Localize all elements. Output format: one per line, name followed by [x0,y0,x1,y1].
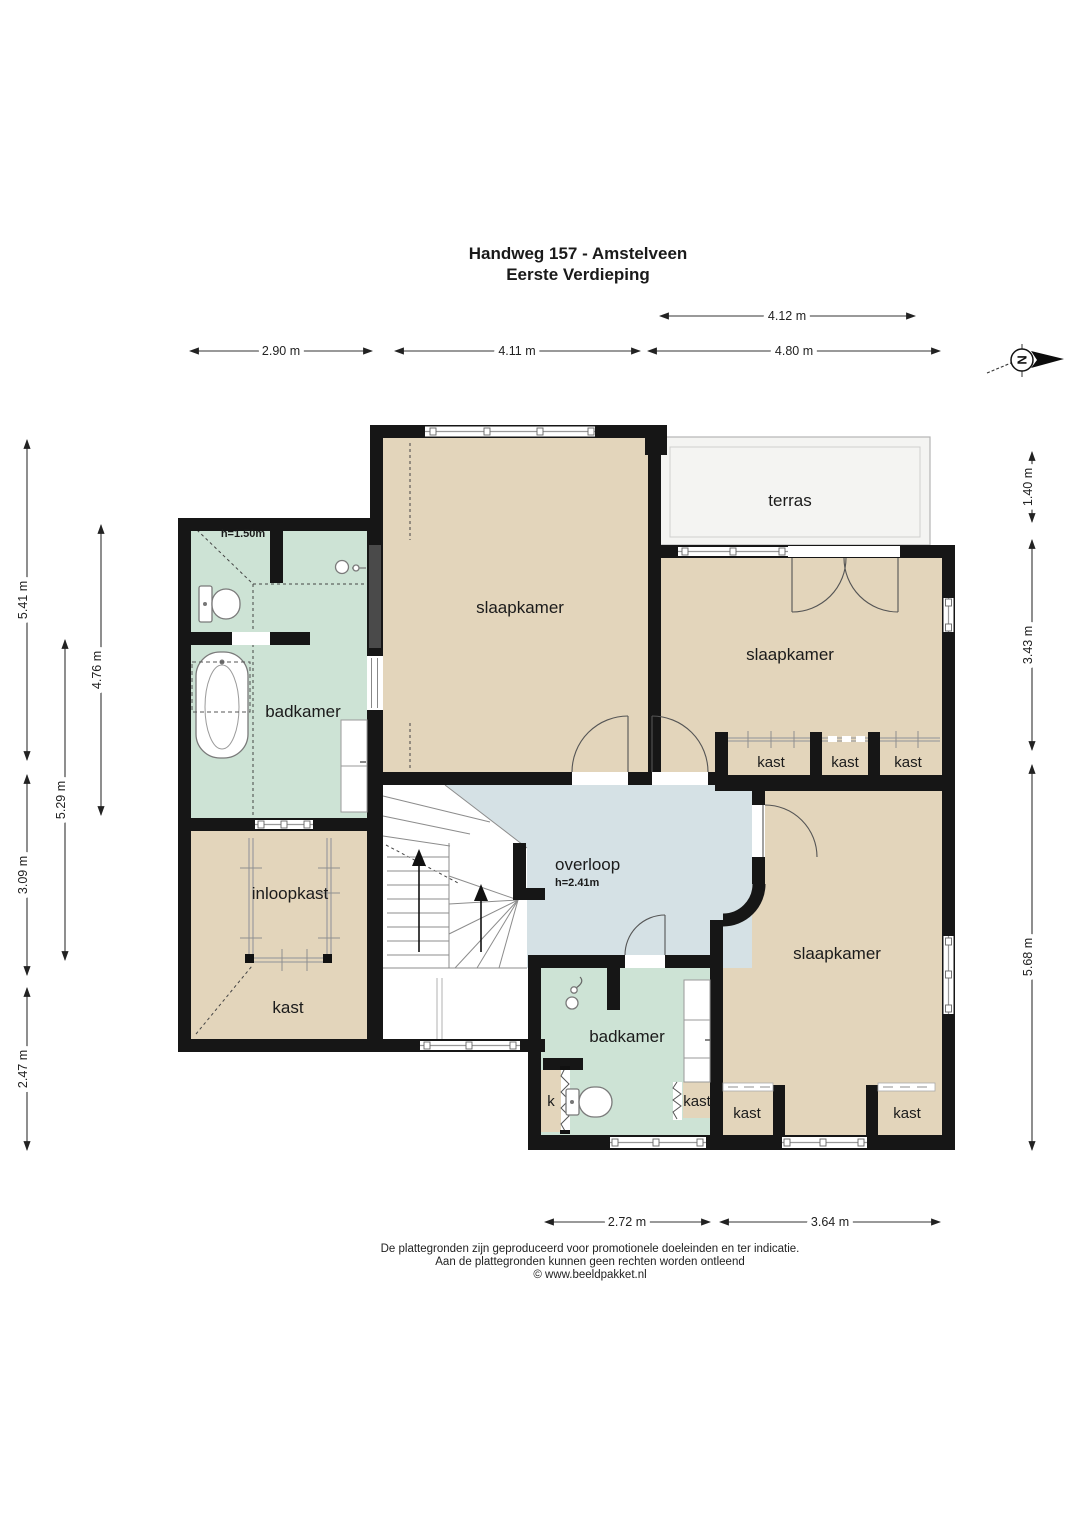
window-bedroom-right-east [944,598,954,632]
window-bathroom-bottom [610,1137,706,1148]
dim-right-top: 1.40 m [1021,468,1035,506]
dim-top-right: 4.80 m [775,344,813,358]
dim-top-left: 2.90 m [262,344,300,358]
toilet-bottom [566,1087,612,1117]
label-bathroom-top: badkamer [265,702,341,721]
door-toilet-niche-opening [232,632,270,645]
closet-bl-sliding [723,1083,773,1091]
dim-left-col2: 5.29 m [54,781,68,819]
toilet-top [199,586,240,622]
label-closet-small: kast [683,1093,711,1110]
label-bedroom-right: slaapkamer [746,645,834,664]
dim-top-terrace: 4.12 m [768,309,806,323]
door-bathroom-top-pocket [367,656,383,710]
label-bedroom-bottom: slaapkamer [793,944,881,963]
footer-line-3: © www.beeldpakket.nl [240,1269,940,1282]
compass-north-arrow [1031,351,1064,368]
bathtub [192,652,250,758]
wall-shaft-inset [369,545,381,648]
footer-disclaimer: De plattegronden zijn geproduceerd voor … [240,1243,940,1283]
compass: N [987,344,1064,377]
label-closet-row-3: kast [894,754,922,771]
label-landing-height: h=2.41m [555,877,600,889]
label-closet-row-1: kast [757,754,785,771]
window-terrace-wall [678,547,788,556]
cabinet-bathroom-bottom [684,980,710,1082]
closet-br-sliding [878,1083,935,1091]
label-closet-row-2: kast [831,754,859,771]
label-closet-br: kast [893,1105,921,1122]
floorplan-page: Handweg 157 - Amstelveen Eerste Verdiepi… [0,0,1080,1527]
label-bathroom-bottom: badkamer [589,1027,665,1046]
dim-right-bottom: 5.68 m [1021,938,1035,976]
label-terrace: terras [768,491,811,510]
cabinet-bathroom-top [341,720,367,812]
footer-line-2: Aan de plattegronden kunnen geen rechten… [240,1256,940,1269]
label-walkin-closet: inloopkast [252,884,329,903]
dim-top-middle: 4.11 m [498,344,535,358]
label-bedroom-top: slaapkamer [476,598,564,617]
dim-left-mid: 3.09 m [16,856,30,894]
dim-bottom-left: 2.72 m [608,1215,646,1229]
label-closet-bl: kast [733,1105,761,1122]
window-bathroom-divider [255,820,313,829]
label-bathroom-height: h=1.50m [221,528,266,540]
footer-line-1: De plattegronden zijn geproduceerd voor … [240,1243,940,1256]
label-closet-k: k [547,1093,555,1110]
closet-small-folding-door [673,1082,682,1120]
floor-plan-svg: slaapkamer slaapkamer slaapkamer badkame… [0,0,1080,1527]
dim-left-lower: 2.47 m [16,1050,30,1088]
label-landing: overloop [555,855,620,874]
dim-left-upper: 5.41 m [16,581,30,619]
window-bedroom-bottom-south [782,1137,867,1148]
dim-left-col3: 4.76 m [90,651,104,689]
dim-bottom-right: 3.64 m [811,1215,849,1229]
compass-north-letter: N [1015,355,1030,364]
label-closet-room: kast [272,998,303,1017]
compass-south-line [987,363,1011,373]
window-bedroom-top [425,427,595,437]
window-closet-room [420,1041,520,1050]
window-bedroom-bottom-east [944,936,954,1014]
dim-right-mid: 3.43 m [1021,626,1035,664]
